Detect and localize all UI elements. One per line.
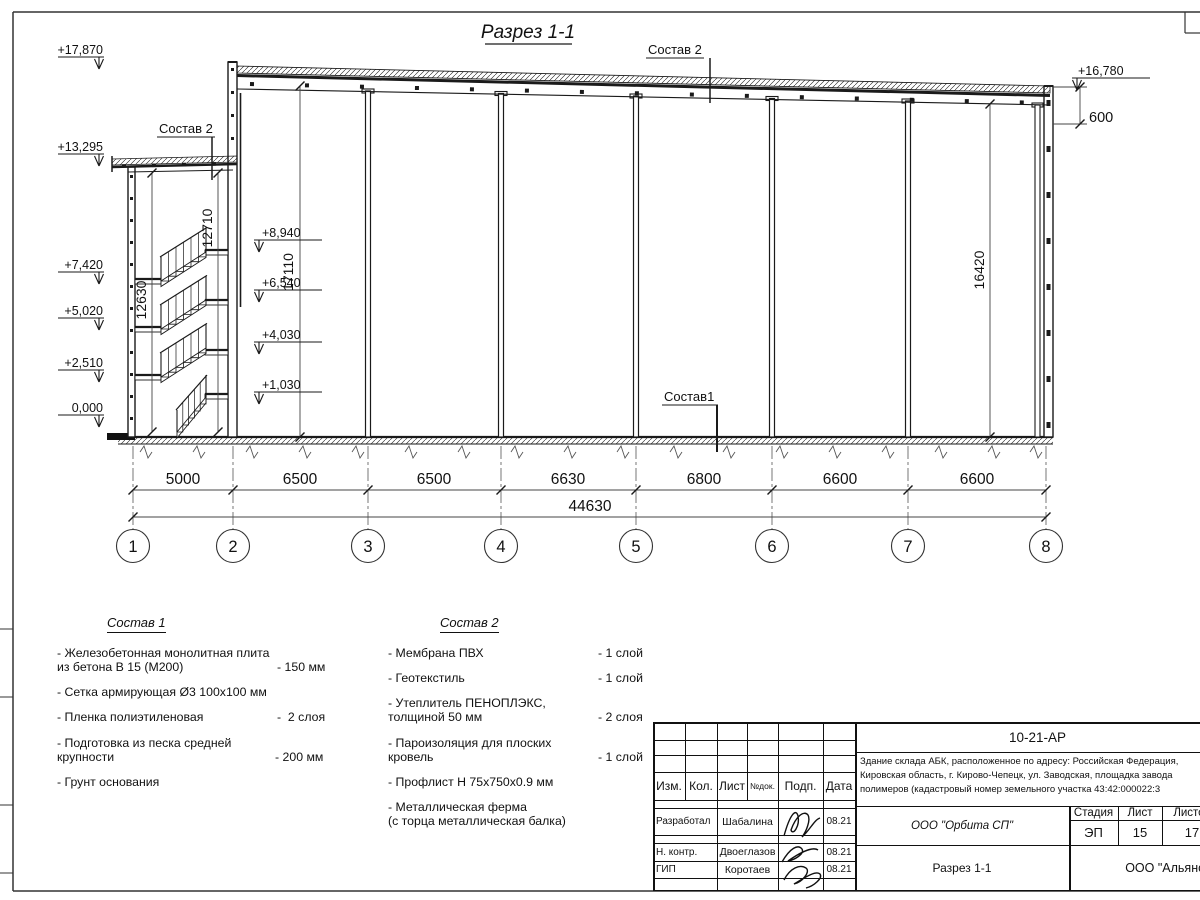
tb-description: Здание склада АБК, расположенное по адре… bbox=[860, 755, 1200, 804]
axis-1: 1 bbox=[128, 538, 137, 556]
axis8-wall bbox=[1044, 86, 1053, 437]
legend-sostav-1: Состав 1 - Железобетонная монолитная пли… bbox=[57, 616, 335, 800]
dim-abk-right: 12710 bbox=[199, 208, 215, 247]
tb-doc-number: 10-21-АР bbox=[855, 722, 1200, 752]
tb-org: ООО "Орбита СП" bbox=[855, 806, 1069, 845]
tb-sheet-label: Лист bbox=[1118, 806, 1162, 820]
legend-item: - Сетка армирующая Ø3 100х100 мм bbox=[57, 685, 335, 699]
stair-flight-bottom bbox=[176, 375, 207, 438]
warehouse-roof bbox=[228, 62, 1053, 105]
dim-2-3: 6500 bbox=[283, 471, 318, 488]
columns bbox=[362, 89, 1043, 437]
tb-col-ndok: №док. bbox=[747, 772, 778, 800]
dim-4-5: 6630 bbox=[551, 471, 586, 488]
axis-2: 2 bbox=[228, 538, 237, 556]
elev-5020: +5,020 bbox=[64, 304, 103, 318]
label-sostav2-roof: Состав 2 bbox=[648, 42, 702, 57]
parapet-dimension: 600 bbox=[1053, 83, 1113, 129]
tb-company: ООО "Альянс" bbox=[1069, 845, 1200, 890]
tb-col-list: Лист bbox=[717, 772, 747, 800]
elev-1030: +1,030 bbox=[262, 378, 301, 392]
elev-17870: +17,870 bbox=[57, 43, 103, 57]
elev-4030: +4,030 bbox=[262, 328, 301, 342]
tb-stage-value: ЭП bbox=[1069, 820, 1118, 845]
elev-13295: +13,295 bbox=[57, 140, 103, 154]
legend2-title: Состав 2 bbox=[440, 616, 499, 633]
tb-drawing-name: Разрез 1-1 bbox=[855, 845, 1069, 890]
dim-5-6: 6800 bbox=[687, 471, 722, 488]
axis2-wall bbox=[228, 62, 237, 437]
staircase bbox=[135, 227, 228, 438]
sheet: { "section": { "title": "Разрез 1-1", "l… bbox=[0, 0, 1200, 900]
legend-item: - Профлист Н 75х750х0.9 мм bbox=[388, 775, 650, 789]
tb-date-gip: 08.21 bbox=[823, 861, 855, 878]
label-sostav2-abk: Состав 2 bbox=[159, 121, 213, 136]
tb-name-ncontr: Двоеглазов bbox=[717, 843, 778, 861]
axis-6: 6 bbox=[767, 538, 776, 556]
elev-6540: +6,540 bbox=[262, 276, 301, 290]
tb-col-podp: Подп. bbox=[778, 772, 823, 800]
elev-7420: +7,420 bbox=[64, 258, 103, 272]
drawing-title: Разрез 1-1 bbox=[481, 22, 575, 44]
legend-sostav-2: Состав 2 - Мембрана ПВХ - 1 слой - Геоте… bbox=[388, 616, 650, 839]
legend-item: - Мембрана ПВХ - 1 слой bbox=[388, 646, 650, 660]
tb-date-ncontr: 08.21 bbox=[823, 843, 855, 861]
axis-5: 5 bbox=[631, 538, 640, 556]
tb-stage-label: Стадия bbox=[1069, 806, 1118, 820]
legend-item: - Металлическая ферма (с торца металличе… bbox=[388, 800, 650, 828]
legend-item: - Пленка полиэтиленовая - 2 слоя bbox=[57, 710, 335, 724]
tb-role-gip: ГИП bbox=[656, 861, 716, 878]
tb-col-izm: Изм. bbox=[653, 772, 685, 800]
legend-item: - Железобетонная монолитная плита из бет… bbox=[57, 646, 335, 674]
axis-7: 7 bbox=[903, 538, 912, 556]
legend-item: - Геотекстиль - 1 слой bbox=[388, 671, 650, 685]
legend-item: - Грунт основания bbox=[57, 775, 335, 789]
grid-bubbles: 1 2 3 4 5 6 7 8 bbox=[117, 530, 1063, 563]
dim-parapet: 600 bbox=[1089, 110, 1113, 126]
elevation-marks-middle: +8,940 +6,540 +4,030 +1,030 bbox=[254, 226, 322, 404]
tb-sheets-value: 17 bbox=[1162, 820, 1200, 845]
elev-8940: +8,940 bbox=[262, 226, 301, 240]
tb-name-gip: Коротаев bbox=[717, 861, 778, 878]
dim-6-7: 6600 bbox=[823, 471, 858, 488]
tb-sheets-label: Листов bbox=[1162, 806, 1200, 820]
dim-1-2: 5000 bbox=[166, 471, 201, 488]
tb-col-kol: Кол. bbox=[685, 772, 717, 800]
elev-0000: 0,000 bbox=[72, 401, 103, 415]
tb-col-data: Дата bbox=[823, 772, 855, 800]
legend1-title: Состав 1 bbox=[107, 616, 166, 633]
tb-sheet-value: 15 bbox=[1118, 820, 1162, 845]
axis-8: 8 bbox=[1041, 538, 1050, 556]
legend-item: - Утеплитель ПЕНОПЛЭКС, толщиной 50 мм -… bbox=[388, 696, 650, 724]
tb-role-developer: Разработал bbox=[656, 808, 716, 835]
label-sostav1: Состав1 bbox=[664, 389, 714, 404]
elev-16780: +16,780 bbox=[1078, 64, 1124, 78]
dim-total: 44630 bbox=[568, 498, 611, 515]
title-block: Изм. Кол. Лист №док. Подп. Дата Разработ… bbox=[653, 722, 1200, 891]
dim-abk-left: 12630 bbox=[133, 280, 149, 319]
legend-item: - Подготовка из песка средней крупности … bbox=[57, 736, 335, 764]
axis-3: 3 bbox=[363, 538, 372, 556]
signature-developer bbox=[780, 806, 824, 842]
axis-4: 4 bbox=[496, 538, 505, 556]
legend-item: - Пароизоляция для плоских кровель - 1 с… bbox=[388, 736, 650, 764]
dim-3-4: 6500 bbox=[417, 471, 452, 488]
signature-gip bbox=[778, 840, 824, 890]
dim-7-8: 6600 bbox=[960, 471, 995, 488]
elevation-mark-right: +16,780 bbox=[1072, 64, 1150, 90]
tb-role-ncontr: Н. контр. bbox=[656, 843, 716, 861]
elev-2510: +2,510 bbox=[64, 356, 103, 370]
tb-name-developer: Шабалина bbox=[717, 808, 778, 835]
ground-break-marks bbox=[140, 446, 1042, 458]
tb-date-developer: 08.21 bbox=[823, 808, 855, 835]
section-title: Разрез 1-1 bbox=[481, 22, 575, 43]
dim-hall-right: 16420 bbox=[971, 250, 987, 289]
dimension-chain: 5000 6500 6500 6630 6800 6600 6600 44630 bbox=[129, 471, 1051, 522]
elevation-marks-left: +17,870 +13,295 +7,420 +5,020 +2,510 0,0… bbox=[57, 43, 104, 427]
